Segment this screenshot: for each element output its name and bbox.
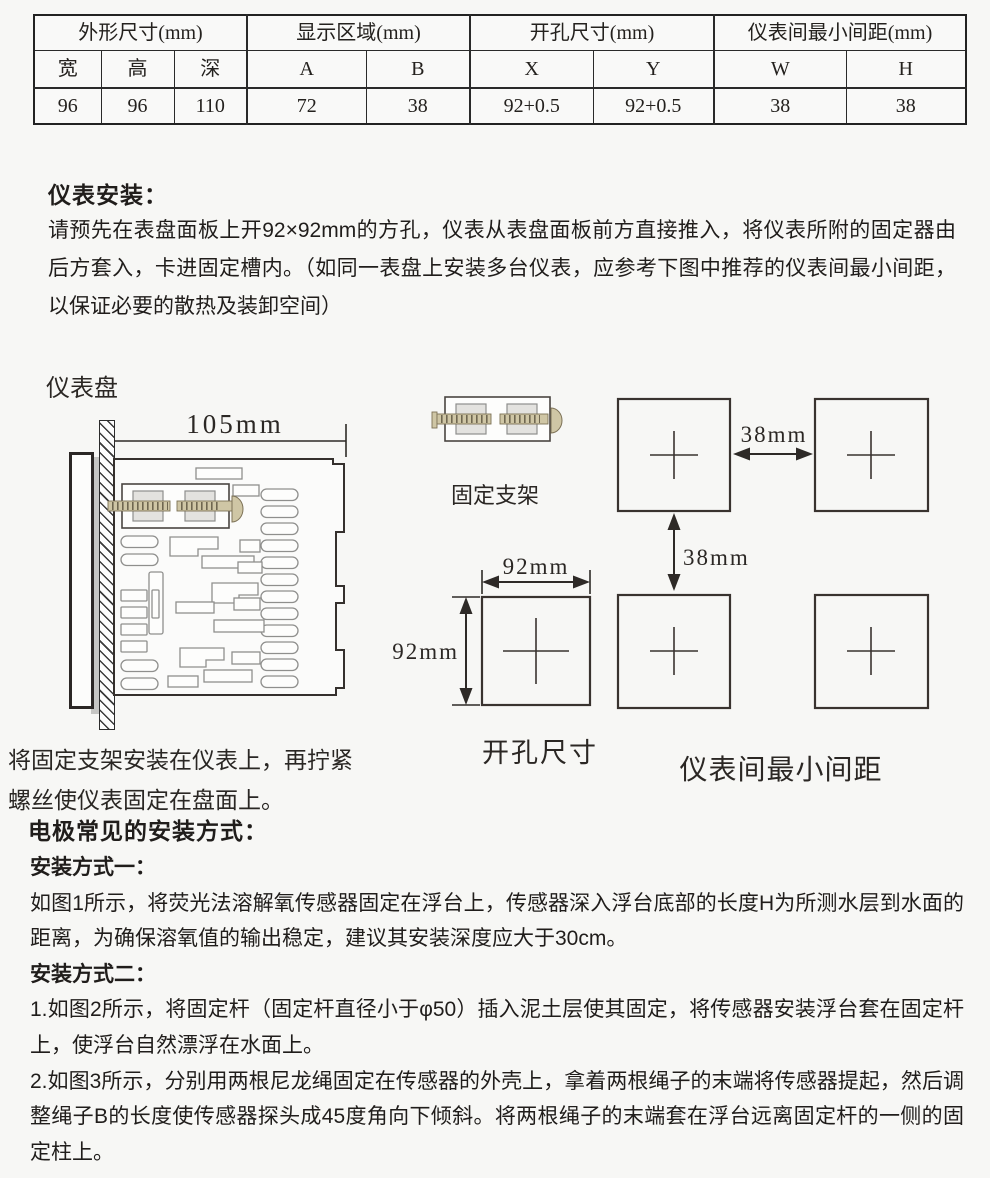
- value-cell: 96: [101, 88, 174, 124]
- column-header-cell: H: [846, 51, 966, 89]
- cutout-height-label: 92mm: [392, 639, 459, 664]
- bracket-screw-left: [108, 501, 170, 511]
- value-cell: 96: [34, 88, 101, 124]
- mounting-bracket-on-body: [108, 484, 243, 528]
- column-header-cell: X: [470, 51, 593, 89]
- table-value-row: 96 96 110 72 38 92+0.5 92+0.5 38 38: [34, 88, 966, 124]
- method2-label: 安装方式二：: [30, 957, 964, 993]
- method2-item2: 2.如图3所示，分别用两根尼龙绳固定在传感器的外壳上，拿着两根绳子的末端将传感器…: [30, 1064, 964, 1171]
- value-cell: 110: [174, 88, 247, 124]
- column-header-cell: 高: [101, 51, 174, 89]
- group-header-cell: 显示区域(mm): [247, 15, 470, 51]
- cutout-width-label: 92mm: [503, 554, 570, 579]
- column-header-cell: 深: [174, 51, 247, 89]
- value-cell: 38: [846, 88, 966, 124]
- install-section-body: 请预先在表盘面板上开92×92mm的方孔，仪表从表盘面板前方直接推入，将仪表所附…: [48, 212, 956, 326]
- method1-text: 如图1所示，将荧光法溶解氧传感器固定在浮台上，传感器深入浮台底部的长度H为所测水…: [30, 886, 964, 957]
- method1-label: 安装方式一：: [30, 850, 964, 886]
- cutout-diagram-label: 开孔尺寸: [482, 738, 598, 768]
- gap-horizontal-label: 38mm: [741, 422, 808, 447]
- electrode-section-heading: 电极常见的安装方式：: [28, 812, 268, 846]
- column-header-cell: W: [714, 51, 846, 89]
- column-header-cell: B: [366, 51, 470, 89]
- value-cell: 38: [714, 88, 846, 124]
- value-cell: 38: [366, 88, 470, 124]
- depth-dimension-label: 105mm: [186, 409, 284, 439]
- table-column-header-row: 宽 高 深 A B X Y W H: [34, 51, 966, 89]
- column-header-cell: 宽: [34, 51, 101, 89]
- gap-vertical-arrow: [668, 513, 681, 591]
- value-cell: 72: [247, 88, 366, 124]
- gap-horizontal-arrow: [733, 448, 813, 461]
- value-cell: 92+0.5: [470, 88, 593, 124]
- cutout-square: [482, 597, 590, 705]
- spacing-diagram-label: 仪表间最小间距: [679, 754, 882, 786]
- column-header-cell: Y: [593, 51, 714, 89]
- manual-page: { "table": { "groups": [ {"label": "外形尺寸…: [0, 0, 990, 1178]
- gap-vertical-label: 38mm: [683, 545, 750, 570]
- table-group-header-row: 外形尺寸(mm) 显示区域(mm) 开孔尺寸(mm) 仪表间最小间距(mm): [34, 15, 966, 51]
- column-header-cell: A: [247, 51, 366, 89]
- method2-item1: 1.如图2所示，将固定杆（固定杆直径小于φ50）插入泥土层使其固定，将传感器安装…: [30, 992, 964, 1063]
- group-header-cell: 开孔尺寸(mm): [470, 15, 714, 51]
- group-header-cell: 外形尺寸(mm): [34, 15, 247, 51]
- bracket-install-caption: 将固定支架安装在仪表上，再拧紧螺丝使仪表固定在盘面上。: [8, 741, 366, 821]
- panel-label: 仪表盘: [46, 375, 118, 402]
- fixing-bracket-diagram: [432, 397, 562, 441]
- dimension-spec-table: 外形尺寸(mm) 显示区域(mm) 开孔尺寸(mm) 仪表间最小间距(mm) 宽…: [33, 14, 967, 125]
- fixing-bracket-label: 固定支架: [451, 483, 539, 508]
- value-cell: 92+0.5: [593, 88, 714, 124]
- group-header-cell: 仪表间最小间距(mm): [714, 15, 966, 51]
- install-section-heading: 仪表安装：: [48, 176, 168, 210]
- electrode-section-body: 安装方式一： 如图1所示，将荧光法溶解氧传感器固定在浮台上，传感器深入浮台底部的…: [30, 850, 964, 1170]
- vent-slot-vertical: [149, 572, 163, 634]
